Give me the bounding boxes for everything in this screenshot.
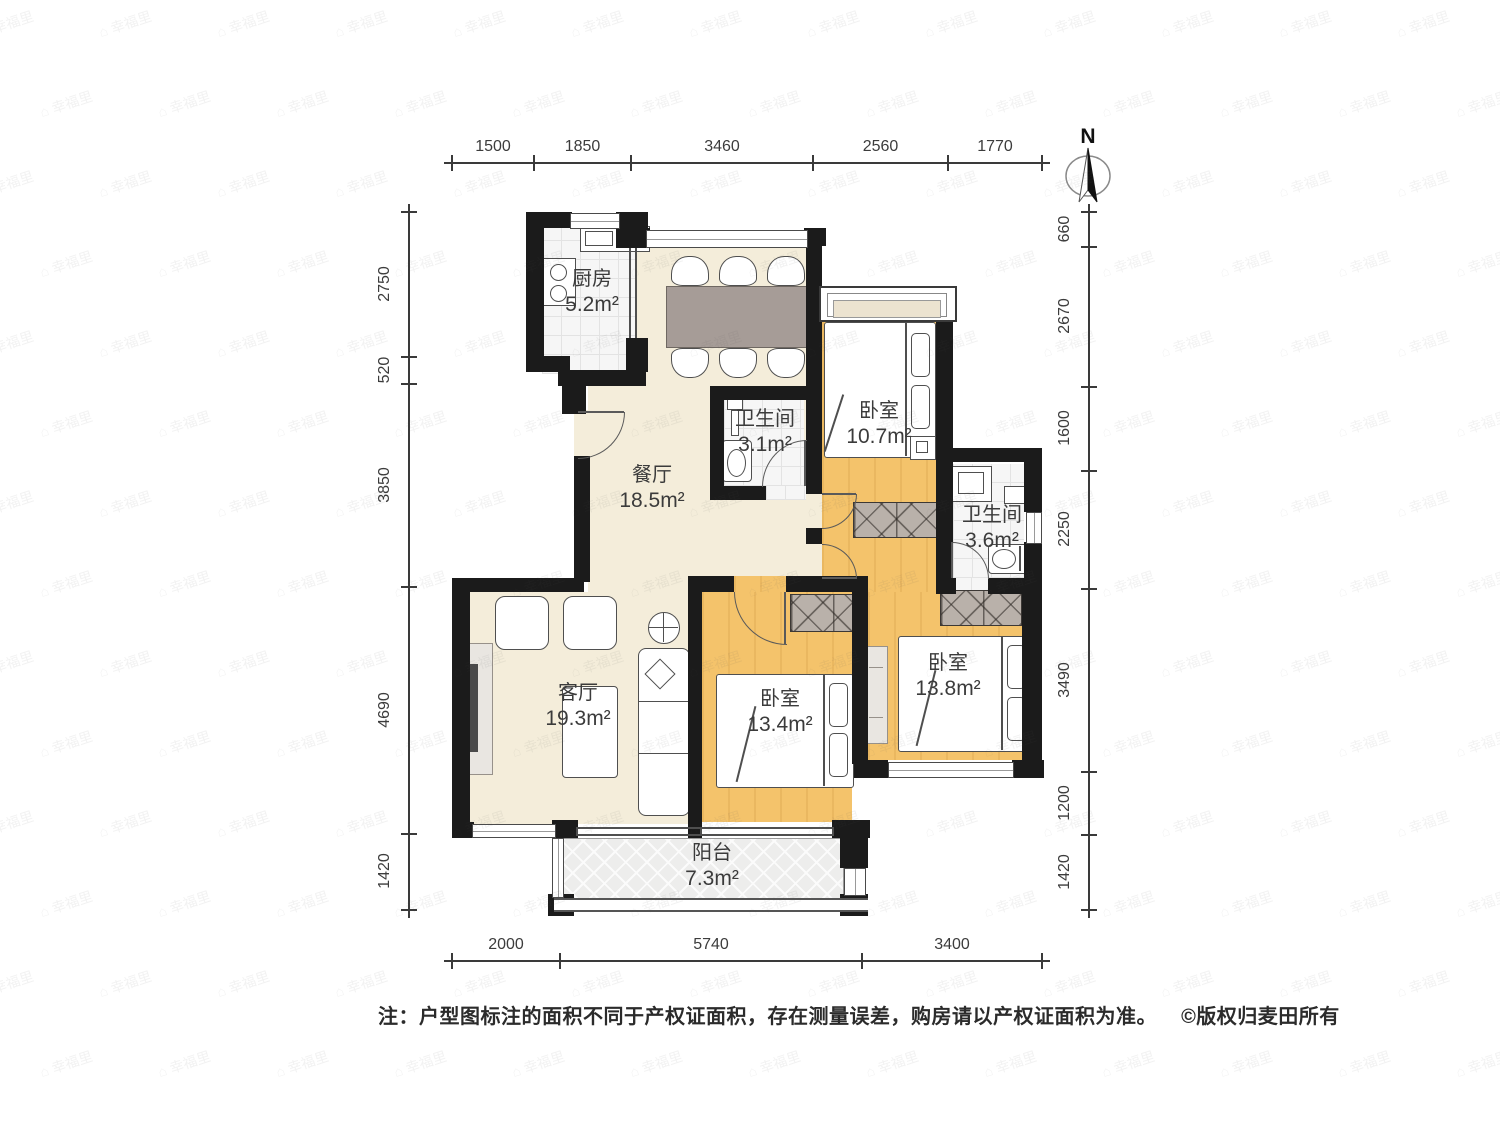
wardrobe	[790, 594, 856, 632]
watermark-text: ⌂ 幸福里	[155, 86, 213, 122]
dimension-mark	[559, 953, 561, 969]
bedroom2-doorway-floor	[734, 576, 786, 592]
room-label-bedroom1: 卧室 10.7m²	[846, 398, 911, 450]
watermark-text: ⌂ 幸福里	[1335, 406, 1393, 442]
watermark-text: ⌂ 幸福里	[1099, 886, 1157, 922]
watermark-text: ⌂ 幸福里	[155, 1046, 213, 1082]
watermark-text: ⌂ 幸福里	[922, 966, 980, 1002]
watermark-text: ⌂ 幸福里	[37, 726, 95, 762]
dimension-value: 3400	[912, 936, 992, 954]
watermark-text: ⌂ 幸福里	[450, 486, 508, 522]
watermark-text: ⌂ 幸福里	[1276, 326, 1334, 362]
dining-chair	[671, 256, 709, 286]
wall-segment	[452, 578, 470, 838]
watermark-text: ⌂ 幸福里	[155, 246, 213, 282]
watermark-text: ⌂ 幸福里	[1099, 566, 1157, 602]
dimension-value: 1420	[1056, 837, 1074, 907]
dimension-value: 1420	[376, 836, 394, 906]
dimension-mark	[444, 162, 1050, 164]
sliding-door-post	[700, 827, 702, 836]
dresser-line	[869, 717, 883, 718]
watermark-text: ⌂ 幸福里	[1158, 806, 1216, 842]
watermark-text: ⌂ 幸福里	[745, 86, 803, 122]
dimension-mark	[401, 356, 417, 358]
watermark-text: ⌂ 幸福里	[0, 166, 36, 202]
watermark-text: ⌂ 幸福里	[155, 726, 213, 762]
dimension-mark	[1081, 588, 1097, 590]
watermark-text: ⌂ 幸福里	[1099, 86, 1157, 122]
watermark-text: ⌂ 幸福里	[332, 326, 390, 362]
wall-segment	[710, 386, 724, 500]
watermark-text: ⌂ 幸福里	[1040, 646, 1098, 682]
watermark-text: ⌂ 幸福里	[1394, 806, 1452, 842]
watermark-text: ⌂ 幸福里	[37, 406, 95, 442]
bath2-window	[1026, 512, 1042, 544]
watermark-text: ⌂ 幸福里	[37, 566, 95, 602]
room-label-bedroom3: 卧室 13.8m²	[915, 650, 980, 702]
watermark-text: ⌂ 幸福里	[981, 246, 1039, 282]
watermark-text: ⌂ 幸福里	[214, 486, 272, 522]
watermark-text: ⌂ 幸福里	[863, 246, 921, 282]
watermark-text: ⌂ 幸福里	[450, 966, 508, 1002]
disclaimer-note: 注：户型图标注的面积不同于产权证面积，存在测量误差，购房请以产权证面积为准。 ©…	[378, 1000, 1340, 1029]
dimension-mark	[861, 953, 863, 969]
wall-segment	[526, 212, 544, 372]
watermark-text: ⌂ 幸福里	[391, 566, 449, 602]
watermark-text: ⌂ 幸福里	[981, 86, 1039, 122]
watermark-text: ⌂ 幸福里	[273, 886, 331, 922]
bay-window-sill	[833, 300, 941, 318]
armchair	[563, 596, 617, 650]
watermark-text: ⌂ 幸福里	[1276, 486, 1334, 522]
watermark-text: ⌂ 幸福里	[332, 806, 390, 842]
wall-segment	[688, 576, 702, 838]
dimension-value: 1770	[955, 138, 1035, 156]
watermark-text: ⌂ 幸福里	[96, 486, 154, 522]
watermark-text: ⌂ 幸福里	[332, 166, 390, 202]
watermark-text: ⌂ 幸福里	[37, 86, 95, 122]
room-name: 餐厅	[619, 462, 684, 488]
watermark-text: ⌂ 幸福里	[686, 966, 744, 1002]
watermark-text: ⌂ 幸福里	[1453, 406, 1500, 442]
watermark-text: ⌂ 幸福里	[1276, 166, 1334, 202]
room-label-balcony: 阳台 7.3m²	[685, 840, 739, 892]
watermark-text: ⌂ 幸福里	[450, 326, 508, 362]
wall-segment	[574, 456, 590, 582]
watermark-text: ⌂ 幸福里	[391, 86, 449, 122]
wall-segment	[452, 578, 584, 592]
wall-segment	[854, 760, 888, 778]
dimension-mark	[1081, 834, 1097, 836]
room-name: 阳台	[685, 840, 739, 866]
watermark-text: ⌂ 幸福里	[1453, 86, 1500, 122]
wardrobe	[853, 502, 940, 538]
pillow	[911, 385, 930, 429]
bedroom1-door-leaf	[822, 493, 856, 495]
wall-segment	[452, 822, 474, 838]
watermark-text: ⌂ 幸福里	[509, 86, 567, 122]
nightstand	[910, 436, 936, 460]
pillow	[829, 733, 848, 777]
wall-segment	[852, 586, 868, 764]
wall-segment	[562, 384, 586, 414]
watermark-text: ⌂ 幸福里	[804, 166, 862, 202]
watermark-text: ⌂ 幸福里	[273, 1046, 331, 1082]
room-area: 3.6m²	[962, 528, 1022, 554]
watermark-text: ⌂ 幸福里	[1099, 1046, 1157, 1082]
bedroom3-window	[888, 762, 1014, 778]
watermark-text: ⌂ 幸福里	[1158, 646, 1216, 682]
watermark-text: ⌂ 幸福里	[0, 646, 36, 682]
sofa	[638, 648, 690, 816]
room-area: 19.3m²	[545, 706, 610, 732]
watermark-text: ⌂ 幸福里	[804, 6, 862, 42]
watermark-text: ⌂ 幸福里	[627, 1046, 685, 1082]
watermark-text: ⌂ 幸福里	[1453, 726, 1500, 762]
watermark-text: ⌂ 幸福里	[1217, 1046, 1275, 1082]
dining-chair	[719, 256, 757, 286]
watermark-text: ⌂ 幸福里	[686, 6, 744, 42]
dimension-value: 1600	[1056, 393, 1074, 463]
watermark-text: ⌂ 幸福里	[214, 966, 272, 1002]
watermark-text: ⌂ 幸福里	[1335, 86, 1393, 122]
watermark-text: ⌂ 幸福里	[1158, 166, 1216, 202]
dimension-value: 3490	[1056, 645, 1074, 715]
dresser-line	[869, 667, 883, 668]
watermark-text: ⌂ 幸福里	[332, 6, 390, 42]
balcony-railing	[554, 898, 868, 912]
bed-divider	[1001, 637, 1003, 750]
watermark-text: ⌂ 幸福里	[214, 646, 272, 682]
watermark-text: ⌂ 幸福里	[273, 86, 331, 122]
watermark-text: ⌂ 幸福里	[332, 966, 390, 1002]
watermark-text: ⌂ 幸福里	[0, 6, 36, 42]
watermark-text: ⌂ 幸福里	[1453, 1046, 1500, 1082]
dimension-mark	[1081, 909, 1097, 911]
room-name: 卧室	[747, 686, 812, 712]
wardrobe	[940, 590, 1022, 626]
armchair	[495, 596, 549, 650]
room-area: 13.4m²	[747, 712, 812, 738]
watermark-text: ⌂ 幸福里	[1099, 246, 1157, 282]
dimension-mark	[401, 909, 417, 911]
room-label-kitchen: 厨房 5.2m²	[565, 266, 619, 318]
watermark-text: ⌂ 幸福里	[37, 886, 95, 922]
balcony-left-edge	[552, 838, 564, 898]
corridor-door-leaf	[822, 577, 856, 579]
room-label-bath2: 卫生间 3.6m²	[962, 502, 1022, 554]
watermark-text: ⌂ 幸福里	[1394, 6, 1452, 42]
watermark-text: ⌂ 幸福里	[273, 566, 331, 602]
watermark-text: ⌂ 幸福里	[214, 326, 272, 362]
watermark-text: ⌂ 幸福里	[155, 886, 213, 922]
watermark-text: ⌂ 幸福里	[1335, 566, 1393, 602]
watermark-text: ⌂ 幸福里	[214, 6, 272, 42]
sink-basin	[585, 231, 613, 246]
dimension-mark	[812, 155, 814, 171]
room-area: 10.7m²	[846, 424, 911, 450]
compass-north-label: N	[1056, 128, 1120, 146]
sink-basin	[958, 472, 984, 494]
watermark-text: ⌂ 幸福里	[332, 486, 390, 522]
watermark-text: ⌂ 幸福里	[391, 726, 449, 762]
dimension-value: 2000	[466, 936, 546, 954]
room-name: 卧室	[915, 650, 980, 676]
bedroom2-door-leaf	[784, 592, 786, 644]
bath2-door-leaf	[951, 542, 953, 578]
watermark-text: ⌂ 幸福里	[922, 6, 980, 42]
watermark-text: ⌂ 幸福里	[1394, 326, 1452, 362]
balcony-sliding-door	[576, 834, 834, 836]
watermark-text: ⌂ 幸福里	[1335, 726, 1393, 762]
dimension-mark	[401, 383, 417, 385]
wall-segment	[1024, 448, 1042, 512]
watermark-text: ⌂ 幸福里	[96, 646, 154, 682]
dining-window	[646, 230, 808, 248]
watermark-text: ⌂ 幸福里	[1099, 406, 1157, 442]
dimension-value: 1500	[453, 138, 533, 156]
dimension-mark	[1041, 155, 1043, 171]
watermark-text: ⌂ 幸福里	[1158, 6, 1216, 42]
watermark-text: ⌂ 幸福里	[1158, 326, 1216, 362]
tv	[470, 664, 478, 752]
watermark-text: ⌂ 幸福里	[922, 166, 980, 202]
watermark-text: ⌂ 幸福里	[214, 166, 272, 202]
dimension-mark	[1081, 771, 1097, 773]
watermark-text: ⌂ 幸福里	[863, 1046, 921, 1082]
dimension-mark	[533, 155, 535, 171]
watermark-text: ⌂ 幸福里	[509, 406, 567, 442]
watermark-text: ⌂ 幸福里	[214, 806, 272, 842]
watermark-text: ⌂ 幸福里	[1276, 646, 1334, 682]
watermark-text: ⌂ 幸福里	[1453, 886, 1500, 922]
watermark-text: ⌂ 幸福里	[627, 86, 685, 122]
note-text: 注：户型图标注的面积不同于产权证面积，存在测量误差，购房请以产权证面积为准。	[378, 1006, 1157, 1028]
living-side-window	[472, 824, 556, 838]
watermark-text: ⌂ 幸福里	[981, 406, 1039, 442]
wall-segment	[936, 578, 956, 594]
watermark-text: ⌂ 幸福里	[155, 566, 213, 602]
dimension-mark	[451, 953, 453, 969]
floorplan-canvas: 厨房 5.2m² 餐厅 18.5m² 卫生间 3.1m² 卧室 10.7m² 卫…	[0, 0, 1500, 1125]
watermark-text: ⌂ 幸福里	[1335, 246, 1393, 282]
watermark-text: ⌂ 幸福里	[0, 486, 36, 522]
wall-segment	[950, 448, 1026, 462]
room-area: 13.8m²	[915, 676, 980, 702]
watermark-text: ⌂ 幸福里	[568, 6, 626, 42]
dimension-value: 1850	[543, 138, 623, 156]
dimension-mark	[451, 155, 453, 171]
watermark-text: ⌂ 幸福里	[745, 1046, 803, 1082]
watermark-text: ⌂ 幸福里	[450, 6, 508, 42]
watermark-text: ⌂ 幸福里	[1217, 726, 1275, 762]
watermark-text: ⌂ 幸福里	[273, 726, 331, 762]
dining-chair	[767, 256, 805, 286]
watermark-text: ⌂ 幸福里	[863, 86, 921, 122]
dimension-mark	[630, 155, 632, 171]
compass-north-icon	[1056, 146, 1120, 208]
watermark-text: ⌂ 幸福里	[1217, 566, 1275, 602]
sliding-door-post	[832, 827, 834, 836]
watermark-text: ⌂ 幸福里	[37, 246, 95, 282]
dimension-mark	[408, 204, 410, 918]
kitchen-window	[570, 213, 620, 229]
dimension-mark	[1081, 246, 1097, 248]
watermark-text: ⌂ 幸福里	[96, 166, 154, 202]
dimension-value: 3850	[376, 450, 394, 520]
dimension-mark	[1088, 204, 1090, 918]
wall-segment	[806, 240, 822, 494]
dimension-value: 5740	[671, 936, 751, 954]
watermark-text: ⌂ 幸福里	[922, 806, 980, 842]
watermark-text: ⌂ 幸福里	[686, 166, 744, 202]
room-label-dining: 餐厅 18.5m²	[619, 462, 684, 514]
pillow	[911, 333, 930, 377]
watermark-text: ⌂ 幸福里	[863, 886, 921, 922]
watermark-text: ⌂ 幸福里	[155, 406, 213, 442]
dimension-value: 520	[376, 335, 394, 405]
wall-segment	[840, 822, 868, 868]
watermark-text: ⌂ 幸福里	[804, 966, 862, 1002]
watermark-text: ⌂ 幸福里	[1040, 486, 1098, 522]
dimension-mark	[401, 211, 417, 213]
watermark-text: ⌂ 幸福里	[1453, 246, 1500, 282]
sofa-pillow	[644, 658, 675, 689]
dimension-mark	[947, 155, 949, 171]
dimension-mark	[401, 586, 417, 588]
watermark-text: ⌂ 幸福里	[1158, 486, 1216, 522]
bed-fold-line	[824, 394, 844, 452]
watermark-text: ⌂ 幸福里	[391, 886, 449, 922]
lamp-cross	[663, 613, 664, 642]
watermark-text: ⌂ 幸福里	[391, 406, 449, 442]
room-name: 卧室	[846, 398, 911, 424]
watermark-text: ⌂ 幸福里	[1453, 566, 1500, 602]
watermark-text: ⌂ 幸福里	[96, 326, 154, 362]
watermark-text: ⌂ 幸福里	[1394, 486, 1452, 522]
watermark-text: ⌂ 幸福里	[1040, 326, 1098, 362]
watermark-text: ⌂ 幸福里	[981, 1046, 1039, 1082]
dimension-value: 2670	[1056, 281, 1074, 351]
room-name: 卫生间	[735, 406, 795, 432]
entry-door-leaf	[578, 411, 624, 413]
watermark-text: ⌂ 幸福里	[96, 806, 154, 842]
balcony-right-window	[844, 868, 866, 896]
bath1-doorway-floor	[766, 486, 806, 500]
watermark-text: ⌂ 幸福里	[1394, 166, 1452, 202]
watermark-text: ⌂ 幸福里	[1394, 966, 1452, 1002]
room-area: 3.1m²	[735, 432, 795, 458]
watermark-text: ⌂ 幸福里	[0, 806, 36, 842]
dimension-value: 1200	[1056, 768, 1074, 838]
watermark-text: ⌂ 幸福里	[1158, 966, 1216, 1002]
watermark-text: ⌂ 幸福里	[96, 6, 154, 42]
dining-table	[666, 286, 810, 348]
sliding-door-post	[576, 827, 578, 836]
watermark-text: ⌂ 幸福里	[1099, 726, 1157, 762]
bathroom-sink	[952, 466, 992, 502]
dimension-mark	[444, 960, 1050, 962]
room-label-bedroom2: 卧室 13.4m²	[747, 686, 812, 738]
watermark-text: ⌂ 幸福里	[981, 886, 1039, 922]
watermark-text: ⌂ 幸福里	[1040, 6, 1098, 42]
dimension-mark	[1081, 470, 1097, 472]
compass: N	[1056, 128, 1120, 213]
kitchen-sliding-door	[635, 248, 637, 338]
wall-segment	[1012, 760, 1044, 778]
nightstand-detail	[916, 441, 928, 453]
dimension-value: 2250	[1056, 494, 1074, 564]
wall-segment	[526, 212, 572, 228]
watermark-text: ⌂ 幸福里	[273, 246, 331, 282]
wall-segment	[806, 386, 822, 444]
watermark-text: ⌂ 幸福里	[273, 406, 331, 442]
watermark-text: ⌂ 幸福里	[1276, 806, 1334, 842]
watermark-text: ⌂ 幸福里	[1335, 886, 1393, 922]
bath1-door-leaf	[804, 440, 806, 486]
watermark-text: ⌂ 幸福里	[450, 166, 508, 202]
watermark-text: ⌂ 幸福里	[1040, 966, 1098, 1002]
watermark-text: ⌂ 幸福里	[568, 966, 626, 1002]
room-area: 7.3m²	[685, 866, 739, 892]
watermark-text: ⌂ 幸福里	[391, 246, 449, 282]
pillow	[829, 683, 848, 727]
room-area: 18.5m²	[619, 488, 684, 514]
watermark-text: ⌂ 幸福里	[0, 966, 36, 1002]
room-name: 厨房	[565, 266, 619, 292]
watermark-text: ⌂ 幸福里	[1217, 406, 1275, 442]
dimension-value: 2750	[376, 249, 394, 319]
bed-divider	[823, 675, 825, 786]
room-area: 5.2m²	[565, 292, 619, 318]
watermark-text: ⌂ 幸福里	[568, 166, 626, 202]
dimension-value: 3460	[682, 138, 762, 156]
room-label-living: 客厅 19.3m²	[545, 680, 610, 732]
watermark-text: ⌂ 幸福里	[37, 1046, 95, 1082]
copyright-text: ©版权归麦田所有	[1181, 1006, 1340, 1028]
watermark-text: ⌂ 幸福里	[1040, 806, 1098, 842]
watermark-text: ⌂ 幸福里	[1217, 246, 1275, 282]
wall-segment	[1022, 586, 1042, 778]
watermark-text: ⌂ 幸福里	[1276, 6, 1334, 42]
watermark-text: ⌂ 幸福里	[332, 646, 390, 682]
dimension-mark	[1081, 386, 1097, 388]
watermark-text: ⌂ 幸福里	[96, 966, 154, 1002]
wall-segment	[710, 386, 820, 400]
bay-window	[819, 286, 957, 322]
watermark-text: ⌂ 幸福里	[1217, 86, 1275, 122]
watermark-text: ⌂ 幸福里	[1335, 1046, 1393, 1082]
watermark-text: ⌂ 幸福里	[1276, 966, 1334, 1002]
watermark-text: ⌂ 幸福里	[1394, 646, 1452, 682]
wall-segment	[710, 486, 766, 500]
watermark-text: ⌂ 幸福里	[1217, 886, 1275, 922]
kitchen-sliding-door	[629, 248, 631, 338]
balcony-sliding-door	[576, 827, 834, 829]
dimension-mark	[1041, 953, 1043, 969]
room-name: 客厅	[545, 680, 610, 706]
watermark-text: ⌂ 幸福里	[509, 1046, 567, 1082]
dimension-mark	[401, 833, 417, 835]
watermark-text: ⌂ 幸福里	[0, 326, 36, 362]
dimension-value: 4690	[376, 675, 394, 745]
room-label-bath1: 卫生间 3.1m²	[735, 406, 795, 458]
room-name: 卫生间	[962, 502, 1022, 528]
sofa-seam	[639, 753, 689, 754]
wall-segment	[806, 528, 822, 544]
wall-segment	[626, 338, 648, 372]
sofa-seam	[639, 701, 689, 702]
